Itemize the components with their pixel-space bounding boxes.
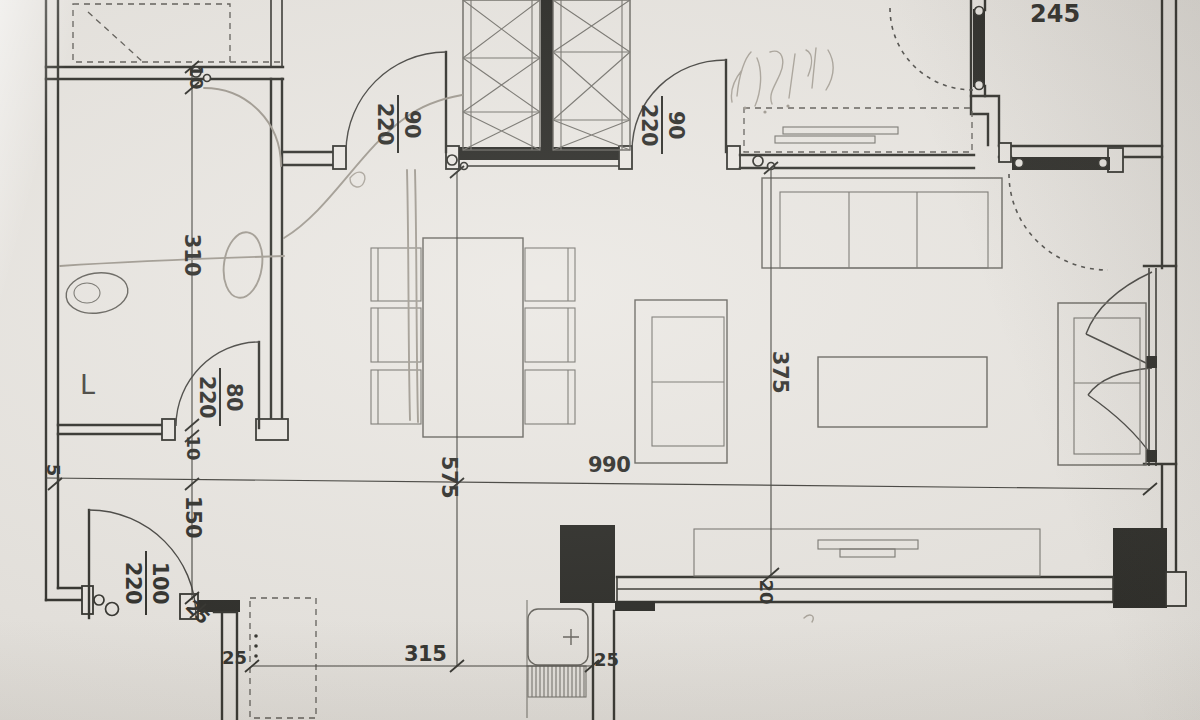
label-990: 990 — [588, 453, 630, 477]
label-150: 150 — [181, 496, 205, 538]
label-310: 310 — [180, 234, 204, 276]
window-handle-top — [1146, 356, 1157, 368]
door-bathroom-height: 220 — [195, 376, 219, 418]
floor-plan-photo: 245 10 310 10 150 5 575 990 375 20 315 2… — [0, 0, 1200, 720]
door-bedroom1-height: 220 — [373, 103, 397, 145]
door-living-hinge-right — [1099, 159, 1108, 168]
window-balcony-sliding — [617, 577, 1113, 602]
wall-245-bottom — [999, 146, 1162, 157]
label-5: 5 — [43, 464, 64, 477]
label-25-right: 25 — [594, 649, 619, 670]
door-245-hinge-bottom — [975, 81, 984, 90]
window-frame-end — [615, 601, 655, 611]
bedroom2-door-jamb-right — [727, 146, 740, 169]
room-balcony — [618, 606, 1178, 718]
door-bedroom2-height: 220 — [637, 104, 661, 146]
label-10-bottom: 10 — [183, 435, 204, 460]
label-wc-L: L — [80, 369, 95, 400]
wall-bathroom-top — [46, 67, 283, 79]
label-575: 575 — [437, 456, 461, 498]
door-bedroom2-width: 90 — [664, 111, 688, 139]
room-bedroom-top-left — [60, 0, 280, 64]
door-living-jamb-right — [1108, 148, 1123, 172]
column-right — [1113, 528, 1167, 608]
bathroom-door-jamb-right — [256, 419, 288, 440]
label-10-top: 10 — [186, 64, 207, 89]
door-living-jamb-left — [999, 143, 1011, 162]
bedroom1-door-jamb-left — [333, 146, 346, 169]
wall-bathroom-bottom — [58, 425, 168, 434]
floor-plan-drawing: 245 10 310 10 150 5 575 990 375 20 315 2… — [0, 0, 1200, 720]
bathroom-door-jamb-left — [162, 419, 175, 440]
column-left — [560, 525, 615, 603]
door-entry-height: 220 — [121, 562, 145, 604]
window-handle-bottom — [1146, 450, 1157, 462]
door-entry-width: 100 — [148, 562, 172, 604]
label-375: 375 — [768, 351, 792, 393]
wall-living-top-left — [282, 152, 334, 165]
wall-bedroom-divider — [541, 0, 553, 150]
entry-door-jamb-left — [82, 586, 93, 614]
label-245: 245 — [1030, 0, 1080, 28]
door-bedroom1-width: 90 — [400, 110, 424, 138]
door-245-leaf — [973, 9, 985, 87]
door-living-hinge-left — [1015, 159, 1024, 168]
wall-bathroom-right — [271, 79, 282, 431]
label-20: 20 — [756, 579, 777, 604]
door-245-hinge-top — [975, 7, 984, 16]
door-living-leaf — [1012, 157, 1110, 170]
door-bathroom-width: 80 — [222, 383, 246, 411]
label-25-left: 25 — [222, 647, 247, 668]
balcony-corner-wall — [1166, 572, 1186, 606]
label-315: 315 — [404, 642, 446, 666]
room-hallway — [730, 0, 970, 148]
room-living-dining — [285, 172, 1145, 572]
